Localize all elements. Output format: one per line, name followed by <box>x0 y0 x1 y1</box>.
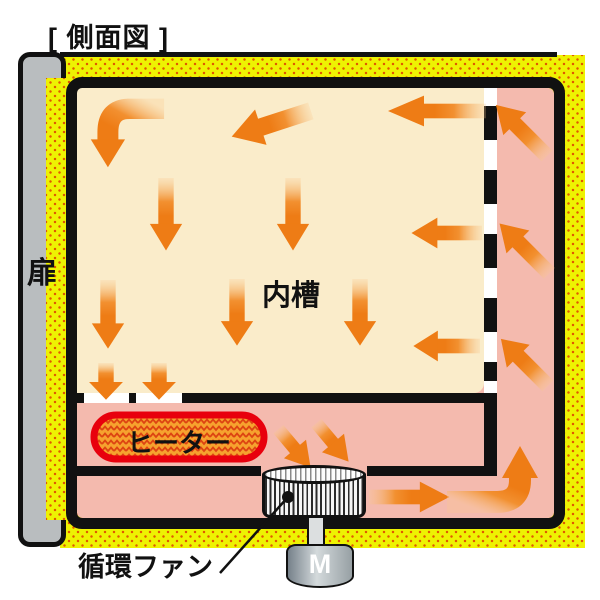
heater-label: ヒーター <box>90 423 268 460</box>
leader-line <box>215 493 293 577</box>
door-insulation-strip <box>46 78 66 520</box>
fan-label: 循環ファン <box>78 545 213 584</box>
inner-chamber-label: 内槽 <box>262 272 320 314</box>
motor-label: M <box>286 549 354 580</box>
door-label: 扉 <box>18 248 66 292</box>
diagram-title: [ 側面図 ] <box>48 16 169 55</box>
outer-case-top-edge <box>60 52 557 57</box>
circulation-fan-top <box>262 465 366 484</box>
